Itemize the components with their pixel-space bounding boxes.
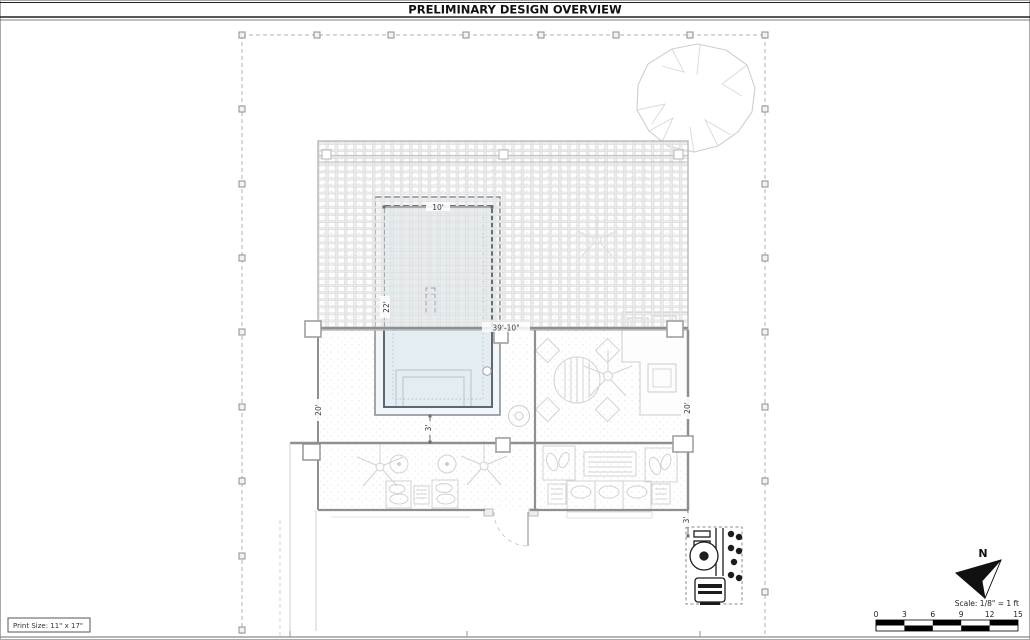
valves (728, 531, 742, 581)
plan-drawing: 10' 22' 39'-10" 20' 20' 3' (0, 0, 1030, 640)
svg-text:22': 22' (382, 301, 391, 313)
svg-text:9: 9 (959, 610, 964, 619)
svg-text:15: 15 (1013, 610, 1023, 619)
svg-text:3: 3 (902, 610, 907, 619)
filter (695, 578, 725, 602)
design-sheet: 10' 22' 39'-10" 20' 20' 3' (0, 0, 1030, 640)
svg-text:10': 10' (432, 203, 444, 212)
svg-text:39'-10": 39'-10" (492, 324, 519, 333)
svg-text:6: 6 (930, 610, 935, 619)
svg-text:0: 0 (874, 610, 879, 619)
pool-equipment (686, 527, 742, 605)
door-jamb-left (484, 509, 493, 516)
title-block: PRELIMINARY DESIGN OVERVIEW (0, 3, 1030, 21)
print-size-label: Print Size: 11" x 17" (13, 622, 83, 630)
print-size-box: Print Size: 11" x 17" (8, 618, 90, 632)
scale-bar-strip (876, 620, 1018, 631)
patio-door (484, 509, 538, 546)
north-label: N (978, 547, 987, 560)
dim-left-depth: 20' (312, 399, 323, 421)
svg-text:3': 3' (424, 425, 433, 432)
tree-canopy (637, 44, 755, 152)
svg-text:20': 20' (314, 404, 323, 416)
pergola-lattice (318, 141, 688, 330)
dim-pool-length: 22' (380, 296, 391, 318)
svg-text:20': 20' (683, 402, 692, 414)
scale-bar: Scale: 1/8" = 1 ft 0 3 6 9 12 15 (874, 599, 1023, 631)
north-arrow: N (956, 547, 1001, 598)
dim-overall-width: 39'-10" (482, 322, 530, 333)
scale-label: Scale: 1/8" = 1 ft (955, 599, 1019, 608)
page-title: PRELIMINARY DESIGN OVERVIEW (408, 3, 622, 17)
pool-light (483, 367, 491, 375)
dim-right-depth: 20' (681, 397, 692, 419)
svg-text:3': 3' (682, 517, 691, 524)
svg-text:12: 12 (985, 610, 995, 619)
wall-step (303, 444, 320, 460)
bottom-fence-ticks (290, 631, 700, 637)
north-arrow-icon (956, 560, 1001, 598)
scale-ticks: 0 3 6 9 12 15 (874, 610, 1023, 619)
